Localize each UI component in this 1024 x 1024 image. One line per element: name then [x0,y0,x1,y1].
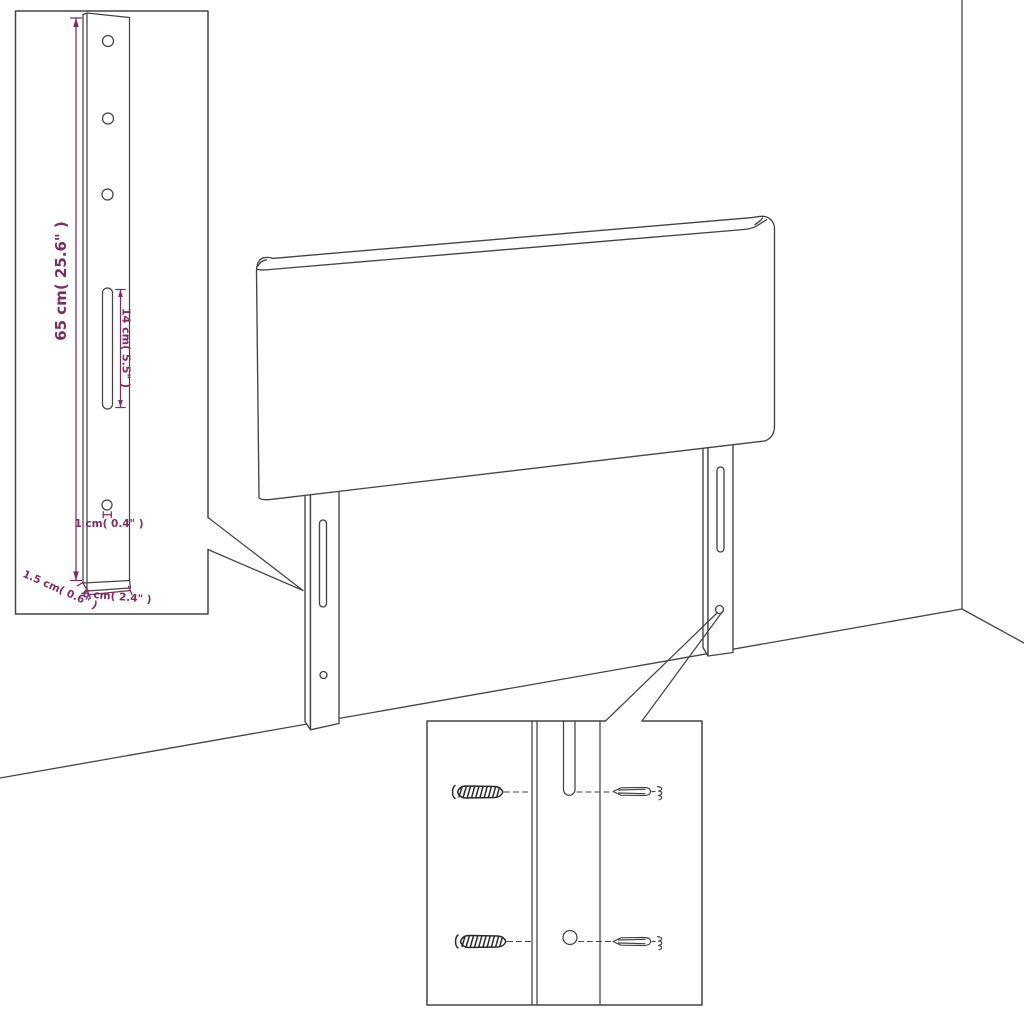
callout-line-lower [208,550,303,591]
callout-line-left [606,613,718,721]
inset-box [427,721,702,1005]
inset-box [16,11,209,614]
left-leg-side-face [305,487,311,730]
headboard [257,216,775,730]
headboard-panel [257,216,775,499]
callout-line-right [642,612,723,722]
headboard-left-leg [305,482,339,730]
headboard-right-leg [703,440,733,656]
callout-line-upper [208,518,303,591]
diagram-canvas [0,0,1024,1024]
diagram-stage: 65 cm( 25.6" ) 14 cm( 5.5" ) 1 cm( 0.4" … [0,0,1024,1024]
left-leg-front-face [311,482,340,730]
floor-line-right [962,609,1024,643]
right-leg-front-face [708,440,733,656]
panel-outline [257,216,775,499]
